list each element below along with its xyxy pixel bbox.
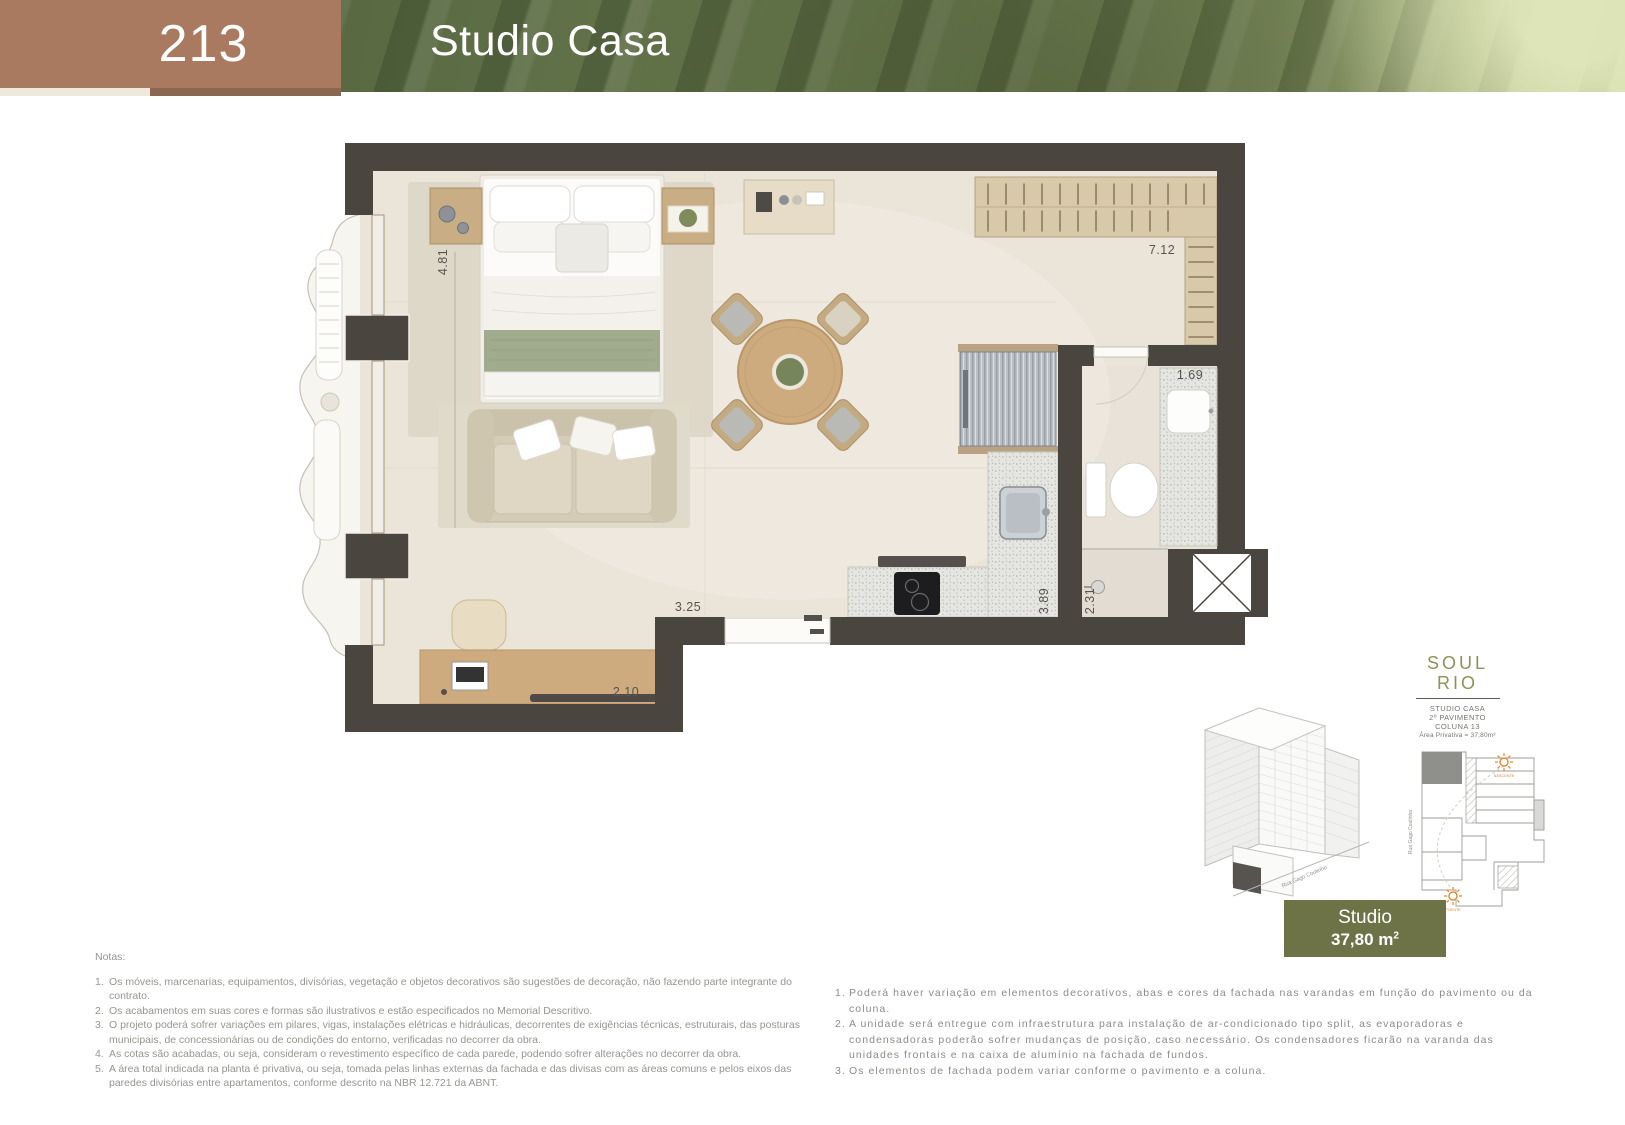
dim-bedroom: 4.81 (436, 249, 450, 275)
note-item: Poderá haver variação em elementos decor… (835, 986, 1540, 1017)
window-band (372, 215, 384, 645)
balcony-chaise (316, 250, 342, 380)
logo-caption-unit-type: STUDIO CASA (1395, 704, 1520, 713)
pillow (490, 186, 570, 222)
sofa (438, 404, 690, 528)
logo-caption-floor: 2º PAVIMENTO (1395, 713, 1520, 722)
bath-sink (1167, 390, 1210, 433)
logo-block: SOUL RIO STUDIO CASA 2º PAVIMENTO COLUNA… (1395, 653, 1520, 740)
fridge (960, 352, 1056, 446)
notes-left-list: Os móveis, marcenarias, equipamentos, di… (95, 975, 810, 1091)
badge-area-value: 37,80 m2 (1331, 930, 1399, 950)
bed-throw (484, 330, 660, 372)
dim-living: 3.25 (675, 600, 701, 614)
balcony-chaise-2 (314, 420, 340, 540)
notes-heading: Notas: (95, 950, 810, 965)
desk-chair (452, 600, 506, 650)
logo-caption-area: Área Privativa = 37,80m² (1395, 731, 1520, 740)
balcony-table (321, 393, 339, 411)
desk-shelf (530, 694, 665, 702)
notes-right: Poderá haver variação em elementos decor… (835, 986, 1540, 1079)
keyplan-street-label: Rua Gago Coutinho (1408, 810, 1414, 854)
note-item: Os móveis, marcenarias, equipamentos, di… (95, 975, 810, 1004)
dim-kitchen: 3.89 (1037, 588, 1051, 614)
logo-word-bottom: RIO (1395, 673, 1520, 693)
dim-desk: 2.10 (613, 685, 639, 699)
sun-set-icon: POENTE (1444, 887, 1462, 912)
range-hood (878, 556, 966, 567)
notes-left: Notas: Os móveis, marcenarias, equipamen… (95, 950, 810, 1091)
sun-rise-label: NASCENTE (1494, 774, 1515, 778)
sun-set-label: POENTE (1445, 908, 1461, 912)
unit-area-badge: Studio 37,80 m2 (1284, 900, 1446, 957)
keyplan-highlighted-unit (1422, 752, 1462, 784)
dim-closet: 7.12 (1149, 243, 1175, 257)
note-item: A unidade será entregue com infraestrutu… (835, 1017, 1540, 1064)
pendant-lamp (458, 223, 469, 234)
faucet (1042, 508, 1050, 516)
logo-word-top: SOUL (1395, 653, 1520, 673)
key-plan: Rua Gago Coutinho NASCENTE POENTE (1408, 752, 1544, 912)
bed (480, 175, 664, 403)
note-item: As cotas são acabadas, ou seja, consider… (95, 1047, 810, 1062)
nightstand-right (662, 188, 714, 244)
pillar (345, 533, 409, 579)
note-item: O projeto poderá sofrer variações em pil… (95, 1018, 810, 1047)
pillar (345, 315, 409, 361)
toilet-tank (1086, 463, 1106, 517)
note-item: A área total indicada na planta é privat… (95, 1062, 810, 1091)
dim-shower: 2.31 (1083, 588, 1097, 614)
badge-unit-type: Studio (1338, 907, 1392, 929)
note-item: Os elementos de fachada podem variar con… (835, 1064, 1540, 1080)
logo-divider (1416, 698, 1500, 699)
toilet-bowl (1110, 463, 1158, 517)
brand-logo: SOUL RIO (1395, 653, 1520, 693)
table-plant (776, 358, 804, 386)
pillow (574, 186, 654, 222)
coffee-machine (756, 192, 772, 212)
pendant-lamp (439, 206, 455, 222)
logo-caption-column: COLUNA 13 (1395, 722, 1520, 731)
coffee-console (744, 180, 834, 234)
sofa-pillow (612, 425, 656, 461)
dim-bath-counter: 1.69 (1177, 368, 1203, 382)
plant (679, 209, 697, 227)
nightstand-left (430, 188, 482, 244)
entry-door (725, 615, 830, 643)
sun-rise-icon: NASCENTE (1494, 753, 1515, 778)
building-illustration: Rua Gago Coutinho (1205, 708, 1369, 896)
center-pillow (556, 224, 608, 272)
bathroom-door (1094, 347, 1148, 357)
keyplan-stairs (1498, 866, 1518, 888)
notes-right-list: Poderá haver variação em elementos decor… (835, 986, 1540, 1079)
note-item: Os acabamentos em suas cores e formas sã… (95, 1004, 810, 1019)
